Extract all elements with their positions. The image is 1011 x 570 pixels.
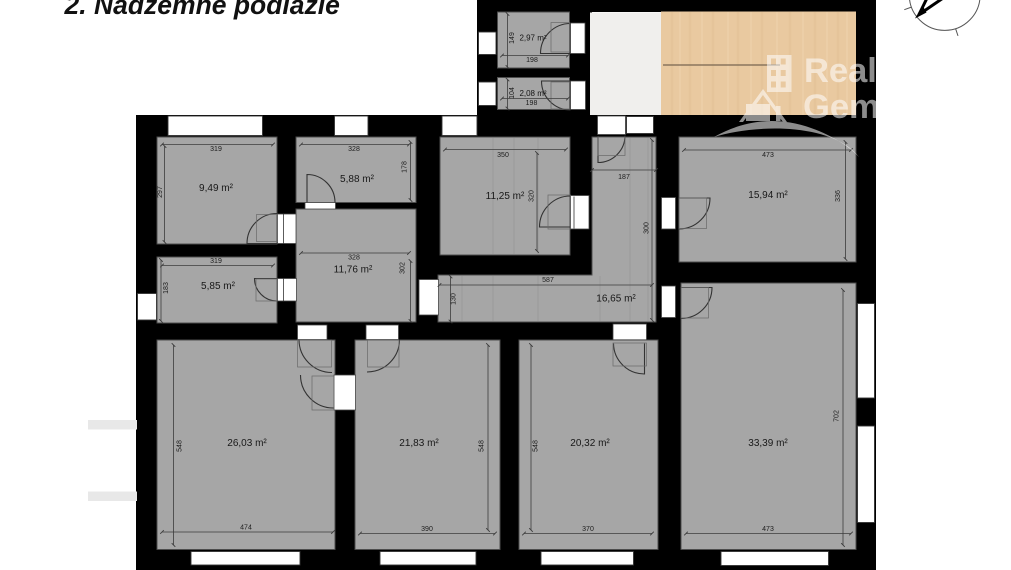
svg-text:473: 473 [762,526,774,533]
svg-text:350: 350 [497,152,509,159]
svg-text:198: 198 [526,57,538,64]
svg-text:587: 587 [542,277,554,284]
svg-text:548: 548 [479,440,486,452]
svg-text:183: 183 [163,282,170,294]
svg-text:548: 548 [533,440,540,452]
svg-text:21,83 m²: 21,83 m² [399,438,439,449]
svg-text:Real: Real [804,52,877,90]
svg-text:Gem: Gem [803,88,880,126]
svg-text:16,65 m²: 16,65 m² [596,294,636,305]
svg-text:319: 319 [210,258,222,265]
svg-text:11,25 m²: 11,25 m² [486,191,525,202]
svg-text:390: 390 [421,526,433,533]
svg-text:187: 187 [618,174,630,181]
svg-text:328: 328 [348,255,360,262]
svg-text:297: 297 [157,186,164,198]
svg-text:5,85 m²: 5,85 m² [201,281,236,292]
svg-text:130: 130 [451,293,458,305]
svg-text:198: 198 [526,100,538,107]
svg-text:104: 104 [509,87,516,99]
svg-text:33,39 m²: 33,39 m² [748,438,788,449]
svg-text:11,76 m²: 11,76 m² [334,265,373,276]
svg-text:20,32 m²: 20,32 m² [570,438,610,449]
svg-text:328: 328 [348,146,360,153]
svg-text:336: 336 [835,190,842,202]
svg-text:149: 149 [509,32,516,44]
svg-text:319: 319 [210,146,222,153]
svg-text:548: 548 [177,440,184,452]
svg-text:474: 474 [240,525,252,532]
svg-text:2,08 m²: 2,08 m² [519,89,546,98]
svg-text:2. Nadzemné podlažie: 2. Nadzemné podlažie [64,0,340,20]
svg-text:26,03 m²: 26,03 m² [227,438,267,449]
svg-text:473: 473 [762,152,774,159]
svg-text:5,88 m²: 5,88 m² [340,174,375,185]
svg-text:702: 702 [834,410,841,422]
svg-text:9,49 m²: 9,49 m² [199,183,234,194]
svg-text:320: 320 [529,190,536,202]
svg-text:15,94 m²: 15,94 m² [748,190,788,201]
svg-text:302: 302 [400,262,407,274]
svg-text:370: 370 [582,526,594,533]
svg-text:2,97 m²: 2,97 m² [519,34,546,43]
svg-text:178: 178 [402,161,409,173]
svg-text:300: 300 [644,222,651,234]
